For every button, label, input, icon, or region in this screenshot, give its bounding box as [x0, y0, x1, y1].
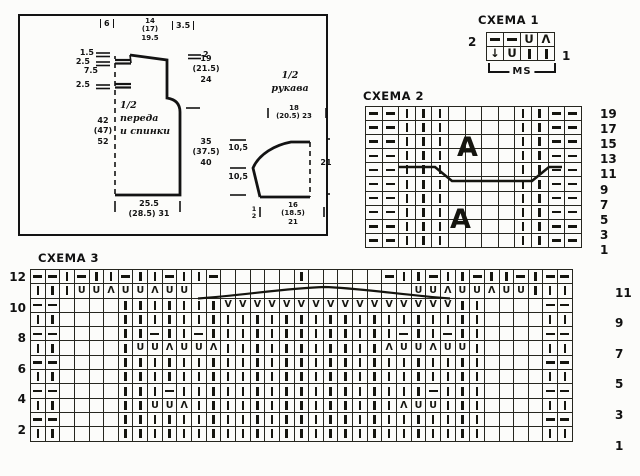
chart-cell	[415, 176, 433, 191]
row-number: 10	[4, 301, 26, 315]
knit-symbol	[439, 109, 442, 118]
chart-cell	[398, 191, 416, 206]
knit-symbol	[534, 272, 537, 281]
chart-cell	[45, 369, 61, 384]
knit-symbol	[522, 180, 525, 189]
chart-cell	[513, 398, 529, 413]
chart-cell	[513, 326, 529, 341]
chart-cell	[162, 383, 178, 398]
chart-cell	[337, 426, 353, 441]
chart-cell	[455, 355, 471, 370]
knit-symbol	[403, 372, 406, 381]
chart-cell	[59, 426, 75, 441]
chart-cell	[220, 326, 236, 341]
chart-cell	[448, 148, 466, 163]
chart-cell	[465, 205, 483, 220]
chart-cell	[367, 412, 383, 427]
chart-cell	[191, 312, 207, 327]
stitch-symbol: U	[136, 343, 144, 353]
chart-cell	[498, 233, 516, 248]
knit-symbol	[476, 387, 479, 396]
chart-cell	[528, 369, 544, 384]
knit-symbol	[476, 358, 479, 367]
chart-cell	[147, 326, 163, 341]
chart-cell: U	[191, 340, 207, 355]
chart-cell	[220, 383, 236, 398]
knit-symbol	[476, 301, 479, 310]
purl-symbol	[552, 140, 561, 143]
knit-symbol	[528, 49, 531, 59]
chart-cell	[381, 355, 397, 370]
chart-cell	[103, 312, 119, 327]
chart-cell	[45, 398, 61, 413]
stitch-symbol: Λ	[444, 286, 451, 296]
chart-cell	[382, 219, 400, 234]
chart-cell	[220, 340, 236, 355]
chart-cell	[481, 106, 499, 121]
row-number: 5	[615, 377, 637, 391]
chart-cell	[367, 398, 383, 413]
knit-symbol	[51, 429, 54, 438]
knit-symbol	[422, 208, 425, 217]
chart-cell	[564, 191, 582, 206]
chart-cell	[235, 398, 251, 413]
chart-cell	[279, 369, 295, 384]
chart-cell	[498, 106, 516, 121]
knit-symbol	[242, 387, 245, 396]
knit-symbol	[154, 272, 157, 281]
purl-symbol	[560, 418, 569, 421]
chart-cell	[367, 426, 383, 441]
chart-cell	[45, 312, 61, 327]
knit-symbol	[344, 372, 347, 381]
chart-cell	[59, 312, 75, 327]
chart-row	[365, 106, 582, 121]
stitch-symbol: U	[93, 286, 101, 296]
chart-cell	[147, 269, 163, 284]
purl-symbol	[386, 126, 395, 129]
chart-cell	[352, 312, 368, 327]
chart-cell	[514, 176, 532, 191]
knit-symbol	[388, 329, 391, 338]
purl-symbol	[369, 225, 378, 228]
chart-row: UΛ	[486, 32, 555, 47]
knit-symbol	[51, 286, 54, 295]
chart-cell	[220, 426, 236, 441]
knit-symbol	[139, 429, 142, 438]
stitch-symbol: U	[459, 286, 467, 296]
knit-symbol	[300, 344, 303, 353]
chart-cell	[30, 326, 46, 341]
knit-symbol	[256, 372, 259, 381]
chart-cell	[382, 148, 400, 163]
purl-symbol	[552, 126, 561, 129]
knit-symbol	[329, 358, 332, 367]
chart-row	[365, 233, 582, 248]
chart-cell	[557, 326, 573, 341]
knit-symbol	[549, 429, 552, 438]
knit-symbol	[461, 329, 464, 338]
knit-symbol	[417, 315, 420, 324]
purl-symbol	[399, 333, 408, 336]
knit-symbol	[139, 372, 142, 381]
chart-cell	[352, 269, 368, 284]
chart-cell	[411, 426, 427, 441]
chart-cell	[381, 383, 397, 398]
knit-symbol	[198, 387, 201, 396]
knit-symbol	[329, 315, 332, 324]
chart-cell	[398, 106, 416, 121]
chart-cell	[448, 233, 466, 248]
chart-cell	[337, 383, 353, 398]
chart-row	[30, 426, 573, 441]
knit-symbol	[329, 415, 332, 424]
knit-symbol	[447, 429, 450, 438]
knit-symbol	[549, 344, 552, 353]
chart-cell	[365, 106, 383, 121]
chart-cell	[74, 398, 90, 413]
knit-symbol	[154, 429, 157, 438]
stitch-symbol: U	[151, 343, 159, 353]
knit-symbol	[315, 315, 318, 324]
chart-cell	[220, 398, 236, 413]
chart-cell	[415, 219, 433, 234]
knit-symbol	[329, 329, 332, 338]
purl-symbol	[546, 333, 555, 336]
knit-symbol	[139, 401, 142, 410]
chart-cell	[103, 355, 119, 370]
schema3-odd-row-numbers: 1197531	[615, 269, 637, 459]
chart-cell	[132, 355, 148, 370]
chart-cell	[431, 120, 449, 135]
purl-symbol	[552, 211, 561, 214]
chart-cell	[279, 383, 295, 398]
chart-cell	[118, 369, 134, 384]
chart-cell: Λ	[484, 283, 500, 298]
chart-cell	[30, 269, 46, 284]
knit-symbol	[271, 372, 274, 381]
chart-cell	[431, 205, 449, 220]
chart-cell	[279, 283, 295, 298]
chart-cell	[235, 326, 251, 341]
front-bottom-width: 25.5 (28.5) 31	[120, 199, 178, 220]
chart-cell	[557, 298, 573, 313]
knit-symbol	[344, 315, 347, 324]
chart-cell	[132, 298, 148, 313]
knit-symbol	[522, 208, 525, 217]
front-total-length: 42 (47) 52	[90, 116, 116, 147]
chart-cell	[431, 191, 449, 206]
chart-cell: V	[250, 298, 266, 313]
purl-symbol	[473, 275, 482, 278]
knit-symbol	[564, 315, 567, 324]
chart-cell	[564, 233, 582, 248]
stitch-symbol: Λ	[151, 286, 158, 296]
knit-symbol	[344, 344, 347, 353]
chart-cell	[279, 269, 295, 284]
knit-symbol	[271, 387, 274, 396]
chart-cell	[103, 412, 119, 427]
knit-symbol	[285, 415, 288, 424]
chart-cell	[499, 426, 515, 441]
chart-cell	[147, 298, 163, 313]
knit-symbol	[154, 315, 157, 324]
chart-cell	[103, 426, 119, 441]
knit-symbol	[344, 429, 347, 438]
purl-symbol	[48, 333, 57, 336]
chart-cell	[235, 383, 251, 398]
chart-cell: V	[308, 298, 324, 313]
chart-cell	[484, 340, 500, 355]
chart-cell	[147, 412, 163, 427]
chart-cell	[469, 326, 485, 341]
chart-cell	[59, 412, 75, 427]
knit-symbol	[461, 301, 464, 310]
chart-cell	[381, 269, 397, 284]
stitch-symbol: V	[239, 300, 246, 310]
chart-cell	[352, 426, 368, 441]
knit-symbol	[227, 344, 230, 353]
chart-cell	[382, 120, 400, 135]
chart-cell	[520, 46, 538, 61]
knit-symbol	[432, 415, 435, 424]
chart-cell	[323, 412, 339, 427]
stitch-symbol: U	[166, 286, 174, 296]
knit-symbol	[403, 272, 406, 281]
purl-symbol	[568, 140, 577, 143]
chart-cell	[308, 312, 324, 327]
chart-cell	[513, 383, 529, 398]
chart-cell: V	[425, 298, 441, 313]
row-number: 6	[4, 362, 26, 376]
chart-cell	[484, 298, 500, 313]
row-number: 8	[4, 331, 26, 345]
front-l4: 2.5	[56, 80, 90, 90]
purl-symbol	[369, 155, 378, 158]
chart-cell	[264, 398, 280, 413]
knit-symbol	[183, 415, 186, 424]
knit-symbol	[549, 372, 552, 381]
knit-symbol	[403, 387, 406, 396]
knit-symbol	[406, 236, 409, 245]
chart-cell	[132, 369, 148, 384]
knit-symbol	[522, 151, 525, 160]
knit-symbol	[256, 315, 259, 324]
purl-symbol	[560, 390, 569, 393]
chart-cell	[440, 369, 456, 384]
chart-cell	[206, 355, 222, 370]
purl-symbol	[568, 126, 577, 129]
chart-cell	[30, 398, 46, 413]
stitch-symbol: U	[78, 286, 86, 296]
chart-cell	[323, 283, 339, 298]
knit-symbol	[417, 387, 420, 396]
chart-cell	[528, 269, 544, 284]
chart-cell	[74, 426, 90, 441]
chart-cell	[557, 412, 573, 427]
knit-symbol	[522, 123, 525, 132]
sleeve-title: 1/2 рукава	[258, 70, 322, 96]
knit-symbol	[373, 415, 376, 424]
knit-symbol	[447, 315, 450, 324]
chart-cell	[548, 120, 566, 135]
chart-cell	[498, 219, 516, 234]
knit-symbol	[271, 358, 274, 367]
knit-symbol	[212, 415, 215, 424]
chart-cell	[118, 340, 134, 355]
chart-cell	[220, 412, 236, 427]
chart-cell	[542, 340, 558, 355]
chart-cell	[89, 426, 105, 441]
knit-symbol	[359, 401, 362, 410]
chart-cell	[59, 369, 75, 384]
chart-cell	[162, 355, 178, 370]
chart-cell	[531, 162, 549, 177]
chart-cell	[250, 326, 266, 341]
knit-symbol	[154, 415, 157, 424]
knit-symbol	[168, 301, 171, 310]
chart-cell	[103, 298, 119, 313]
chart-cell	[235, 412, 251, 427]
knit-symbol	[417, 372, 420, 381]
chart-cell: V	[352, 298, 368, 313]
stitch-symbol: U	[444, 343, 452, 353]
chart-cell	[176, 383, 192, 398]
chart-cell	[206, 412, 222, 427]
knit-symbol	[522, 137, 525, 146]
knit-symbol	[439, 137, 442, 146]
knit-symbol	[359, 315, 362, 324]
chart-cell	[469, 269, 485, 284]
chart-cell	[365, 205, 383, 220]
knit-symbol	[124, 429, 127, 438]
chart-cell	[118, 298, 134, 313]
chart-cell	[250, 412, 266, 427]
chart-cell	[323, 369, 339, 384]
chart-cell	[250, 398, 266, 413]
knit-symbol	[432, 358, 435, 367]
chart-cell	[542, 383, 558, 398]
purl-symbol	[552, 183, 561, 186]
chart-cell	[89, 340, 105, 355]
chart-cell	[206, 398, 222, 413]
stitch-symbol: V	[327, 300, 334, 310]
chart-cell	[30, 369, 46, 384]
chart-cell	[176, 312, 192, 327]
purl-symbol	[568, 197, 577, 200]
chart-cell	[30, 340, 46, 355]
chart-cell	[498, 148, 516, 163]
knit-symbol	[406, 194, 409, 203]
knit-symbol	[124, 372, 127, 381]
chart-cell	[365, 148, 383, 163]
knit-symbol	[139, 415, 142, 424]
chart-cell	[498, 176, 516, 191]
chart-cell	[30, 412, 46, 427]
chart-cell	[365, 120, 383, 135]
chart-cell	[484, 426, 500, 441]
purl-symbol	[386, 112, 395, 115]
stitch-symbol: U	[166, 401, 174, 411]
knit-symbol	[124, 344, 127, 353]
knit-symbol	[183, 387, 186, 396]
chart-cell	[352, 383, 368, 398]
knit-symbol	[522, 109, 525, 118]
chart-cell	[415, 134, 433, 149]
chart-cell	[308, 369, 324, 384]
purl-symbol	[568, 239, 577, 242]
chart-cell	[531, 106, 549, 121]
chart-row	[365, 148, 582, 163]
knit-symbol	[315, 344, 318, 353]
purl-symbol	[552, 225, 561, 228]
purl-symbol	[386, 140, 395, 143]
purl-symbol	[386, 155, 395, 158]
knit-symbol	[417, 429, 420, 438]
knit-symbol	[329, 401, 332, 410]
chart-cell	[147, 383, 163, 398]
garment-schematic: 6 14 (17) 19.5 3.5 2 19 (21.5) 24 35 (37…	[18, 14, 328, 236]
chart-cell	[415, 233, 433, 248]
knit-symbol	[242, 401, 245, 410]
knit-symbol	[271, 401, 274, 410]
stitch-symbol: Λ	[488, 286, 495, 296]
chart-cell	[323, 398, 339, 413]
knit-symbol	[183, 301, 186, 310]
chart-cell	[323, 426, 339, 441]
chart-cell	[455, 269, 471, 284]
chart-cell	[30, 355, 46, 370]
chart-cell	[531, 191, 549, 206]
chart-cell	[191, 398, 207, 413]
purl-symbol	[552, 197, 561, 200]
knit-symbol	[300, 387, 303, 396]
stitch-symbol: U	[136, 286, 144, 296]
chart-cell	[308, 412, 324, 427]
chart-cell	[548, 176, 566, 191]
chart-cell	[465, 134, 483, 149]
knit-symbol	[139, 301, 142, 310]
chart-cell	[514, 106, 532, 121]
chart-cell	[448, 120, 466, 135]
stitch-symbol: U	[507, 48, 516, 60]
knit-symbol	[271, 415, 274, 424]
chart-cell	[542, 312, 558, 327]
chart-cell	[514, 233, 532, 248]
purl-symbol	[194, 333, 203, 336]
chart-cell	[465, 191, 483, 206]
chart-cell	[118, 312, 134, 327]
chart-cell	[323, 326, 339, 341]
chart-cell	[564, 205, 582, 220]
chart-cell	[147, 355, 163, 370]
knit-symbol	[212, 301, 215, 310]
chart-cell	[557, 398, 573, 413]
chart-cell	[542, 298, 558, 313]
chart-cell	[415, 205, 433, 220]
chart-cell	[398, 148, 416, 163]
purl-symbol	[546, 304, 555, 307]
chart-cell	[235, 340, 251, 355]
knit-symbol	[329, 344, 332, 353]
chart-cell	[455, 383, 471, 398]
chart-cell: ↓	[486, 46, 504, 61]
chart-cell	[74, 312, 90, 327]
chart-cell	[381, 326, 397, 341]
chart-cell: U	[411, 283, 427, 298]
chart-cell	[481, 148, 499, 163]
chart-cell	[415, 191, 433, 206]
